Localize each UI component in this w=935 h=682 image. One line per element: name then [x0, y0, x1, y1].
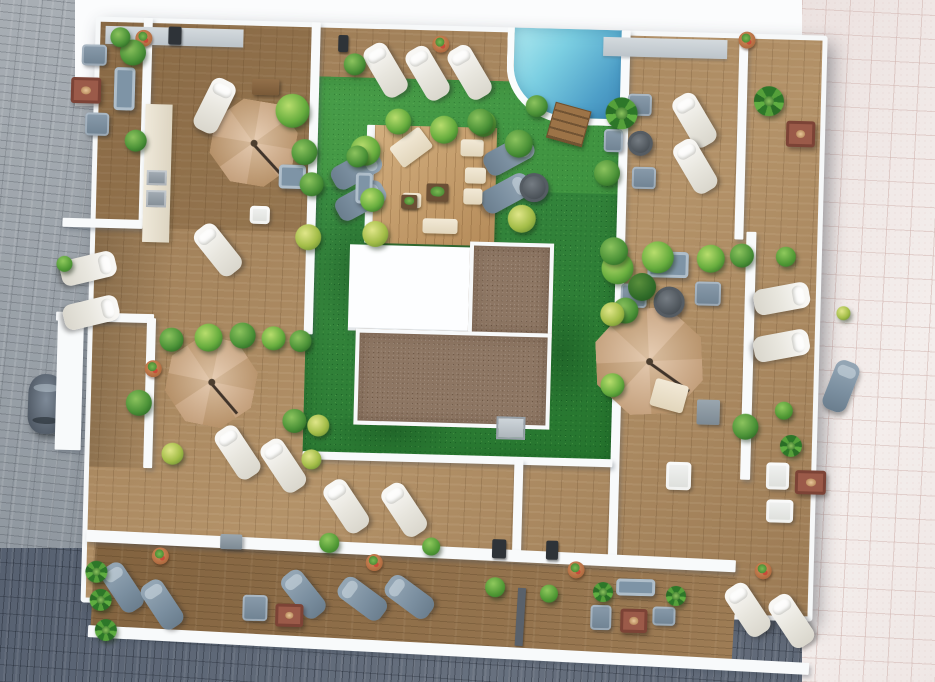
lounge-mat — [465, 167, 486, 184]
lounge-mat — [460, 139, 483, 157]
wall-light — [168, 26, 181, 44]
armchair-gray — [85, 112, 110, 136]
armchair-white — [250, 206, 270, 225]
building-roof — [348, 244, 482, 333]
fire-pit-table — [620, 609, 648, 634]
wall-light — [546, 541, 558, 560]
wall-light — [338, 35, 348, 52]
outdoor-sofa — [113, 67, 135, 111]
parapet-ledge — [55, 320, 84, 451]
armchair-gray — [604, 129, 624, 152]
armchair-white — [766, 499, 794, 523]
armchair-gray — [590, 605, 612, 631]
armchair-gray — [652, 606, 675, 626]
armchair-gray — [632, 167, 657, 190]
outdoor-sofa — [616, 578, 655, 596]
roof-vent — [603, 37, 727, 59]
wood-bench — [252, 79, 279, 96]
kitchen-appliance — [146, 190, 166, 208]
kitchen-appliance — [147, 170, 167, 186]
fire-pit-table — [275, 603, 304, 627]
armchair-white — [666, 462, 692, 491]
armchair-gray — [242, 595, 268, 622]
fire-pit-table — [71, 77, 102, 104]
gravel-roof-lower — [353, 328, 551, 429]
rooflight-box — [496, 416, 526, 440]
planter-box — [401, 195, 417, 209]
roof-plan — [70, 8, 834, 639]
storage-box — [696, 399, 720, 425]
wall-light — [492, 539, 506, 558]
rooftop-render — [0, 0, 935, 682]
armchair-white — [766, 462, 790, 490]
lounge-mat — [422, 218, 457, 234]
fire-pit-table — [786, 121, 816, 148]
lounge-mat — [463, 188, 482, 204]
fire-pit-table — [795, 470, 827, 495]
storage-box — [220, 534, 242, 550]
armchair-gray — [695, 281, 722, 306]
planter-box — [426, 183, 448, 202]
gravel-roof-upper — [468, 241, 554, 337]
armchair-gray — [82, 44, 108, 66]
